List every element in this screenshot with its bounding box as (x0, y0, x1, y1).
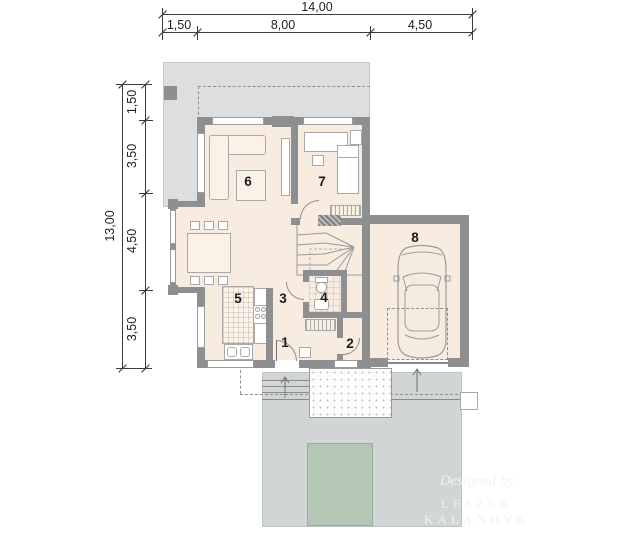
terrace-top (163, 62, 370, 120)
garage-door-line (388, 362, 448, 364)
dim-top-seg2-label: 8,00 (263, 18, 303, 32)
dim-stub (472, 8, 473, 40)
dim-stub (162, 8, 163, 40)
wall-living-bedroom (291, 125, 298, 204)
desk-chair (312, 155, 324, 166)
dim-left-total-label: 13,00 (103, 204, 117, 248)
window-living-top (212, 117, 264, 125)
watermark-script: Designed by (392, 473, 562, 490)
wall-room2-left (337, 318, 343, 338)
room-label-7: 7 (315, 174, 329, 189)
bed-pillow-line (338, 157, 358, 158)
dim-stub (139, 120, 153, 121)
curb-step-right (460, 392, 478, 410)
entry-porch (309, 368, 392, 418)
vent-shaft (318, 215, 341, 226)
floor-plan-canvas: 1 2 3 4 5 6 7 8 14,00 1,50 8,00 4,50 13,… (0, 0, 638, 556)
room-label-1: 1 (278, 335, 292, 350)
front-door-leaf (276, 340, 277, 361)
watermark-name: LESZEK KALANDYK (392, 496, 562, 528)
stove-burner (255, 307, 260, 312)
garage-wall-bottom-right (448, 358, 469, 367)
dim-stub (197, 26, 198, 40)
window-living-left (197, 133, 205, 193)
dim-stub (139, 193, 153, 194)
dim-left-seg3-label: 4,50 (125, 222, 139, 260)
window-bay-1 (170, 210, 176, 244)
dining-chair (218, 276, 228, 285)
dim-stub (139, 290, 153, 291)
garage-wall-top (362, 215, 469, 224)
bay-corner-bottom (168, 285, 178, 295)
roof-overhang-line-top-v (198, 86, 199, 120)
terrace-left-strip (163, 119, 198, 207)
window-bedroom-top (303, 117, 353, 125)
dim-stub (116, 84, 152, 85)
dim-top-seg-line (162, 32, 472, 33)
dining-chair (218, 221, 228, 230)
garage-wall-bottom-left (362, 358, 388, 367)
window-bay-2 (170, 249, 176, 283)
dim-stub (370, 26, 371, 40)
window-kitchen-left (197, 306, 205, 348)
wall-kitchen-hall (266, 288, 273, 368)
lawn-patch (307, 443, 373, 526)
kitchen-sink-bowl (240, 347, 250, 357)
dim-left-seg2-label: 3,50 (125, 137, 139, 175)
tv-unit (281, 138, 290, 196)
entry-arrow-icon (278, 374, 292, 400)
roof-overhang-line-top (198, 86, 370, 87)
front-door-opening (275, 360, 299, 368)
room-label-4: 4 (317, 290, 331, 305)
staircase (296, 223, 366, 277)
dim-top-total-line (162, 14, 472, 15)
cabinet (350, 130, 362, 145)
room-label-8: 8 (408, 230, 422, 245)
watermark: Designed by LESZEK KALANDYK (392, 473, 562, 528)
wall-right-house (362, 117, 370, 368)
dim-top-total-label: 14,00 (297, 0, 337, 14)
dim-stub (116, 368, 152, 369)
room-label-2: 2 (343, 336, 357, 351)
wall-bath-right (341, 270, 347, 318)
dim-top-seg3-label: 4,50 (400, 18, 440, 32)
bay-corner-top (168, 199, 178, 209)
entry-cabinet (299, 347, 311, 358)
dining-table (187, 233, 231, 273)
dim-left-total-line (122, 84, 123, 368)
garage-wall-right (460, 215, 469, 367)
dining-chair (204, 221, 214, 230)
stove-burner (255, 314, 260, 319)
dim-left-seg4-label: 3,50 (125, 310, 139, 348)
garage-arrow-icon (410, 366, 424, 394)
window-room2-bottom (334, 360, 358, 368)
kitchen-sink-bowl (227, 347, 237, 357)
dim-left-seg1-label: 1,50 (125, 83, 139, 121)
dim-left-seg-line (145, 84, 146, 368)
dining-chair (204, 276, 214, 285)
garage-door-zone (387, 308, 448, 360)
sofa-left (209, 135, 229, 200)
room-label-5: 5 (231, 291, 245, 306)
terrace-pillar (164, 86, 177, 100)
bed (337, 145, 359, 194)
room-label-6: 6 (241, 174, 255, 189)
window-kitchen-bottom (207, 360, 254, 368)
dining-chair (190, 221, 200, 230)
wardrobe-entry (305, 319, 336, 331)
dining-chair (190, 276, 200, 285)
bedroom-door-opening (300, 218, 319, 225)
room-label-3: 3 (276, 291, 290, 306)
